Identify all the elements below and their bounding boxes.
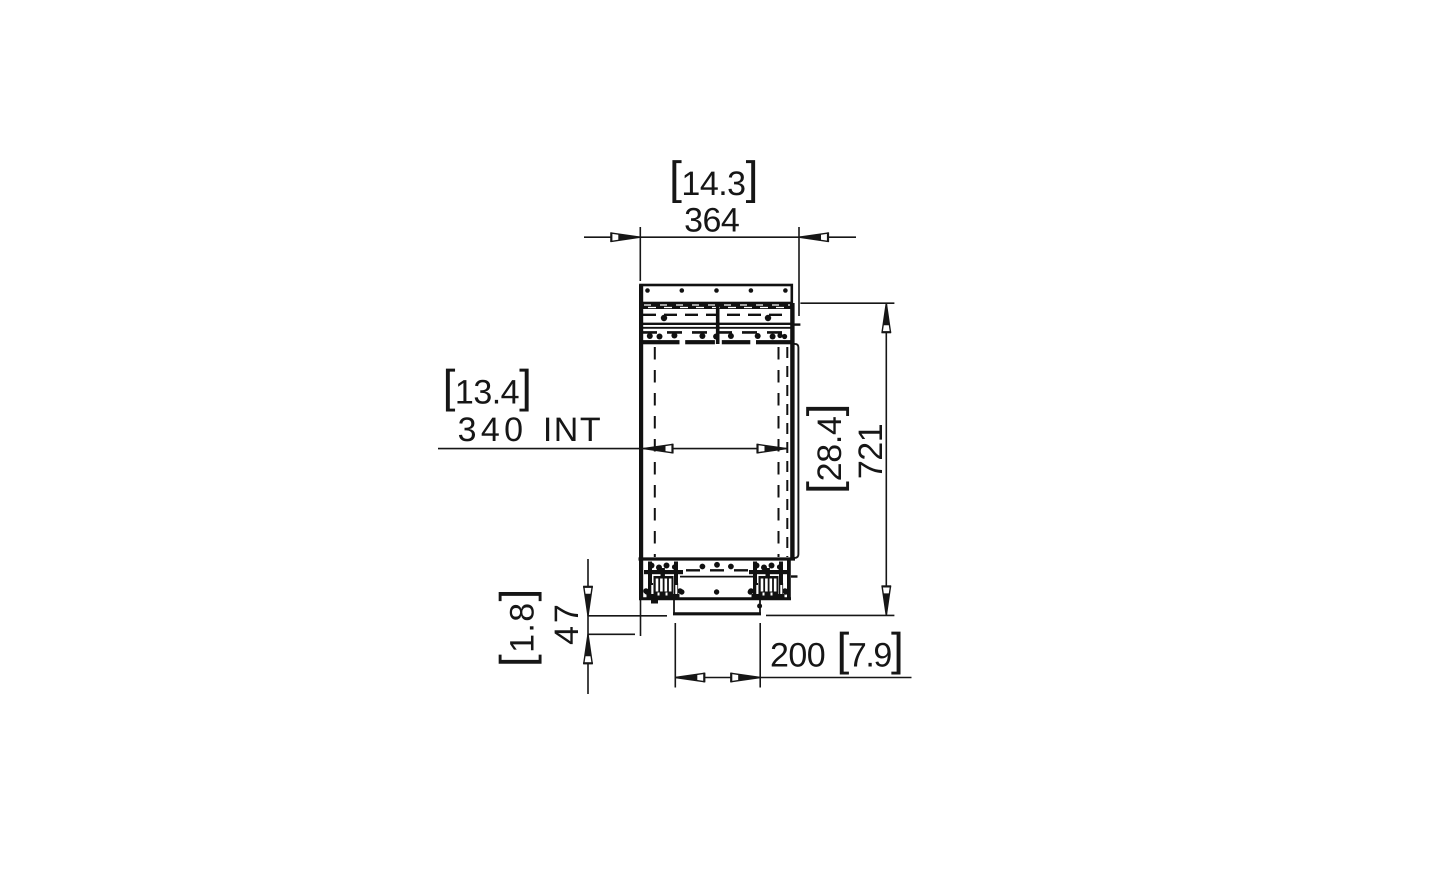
svg-text:INT: INT bbox=[543, 411, 602, 449]
svg-text:721: 721 bbox=[852, 424, 890, 479]
svg-text:200: 200 bbox=[770, 637, 825, 675]
svg-text:47: 47 bbox=[548, 601, 586, 644]
svg-text:364: 364 bbox=[684, 202, 739, 240]
svg-text:340: 340 bbox=[458, 411, 528, 449]
